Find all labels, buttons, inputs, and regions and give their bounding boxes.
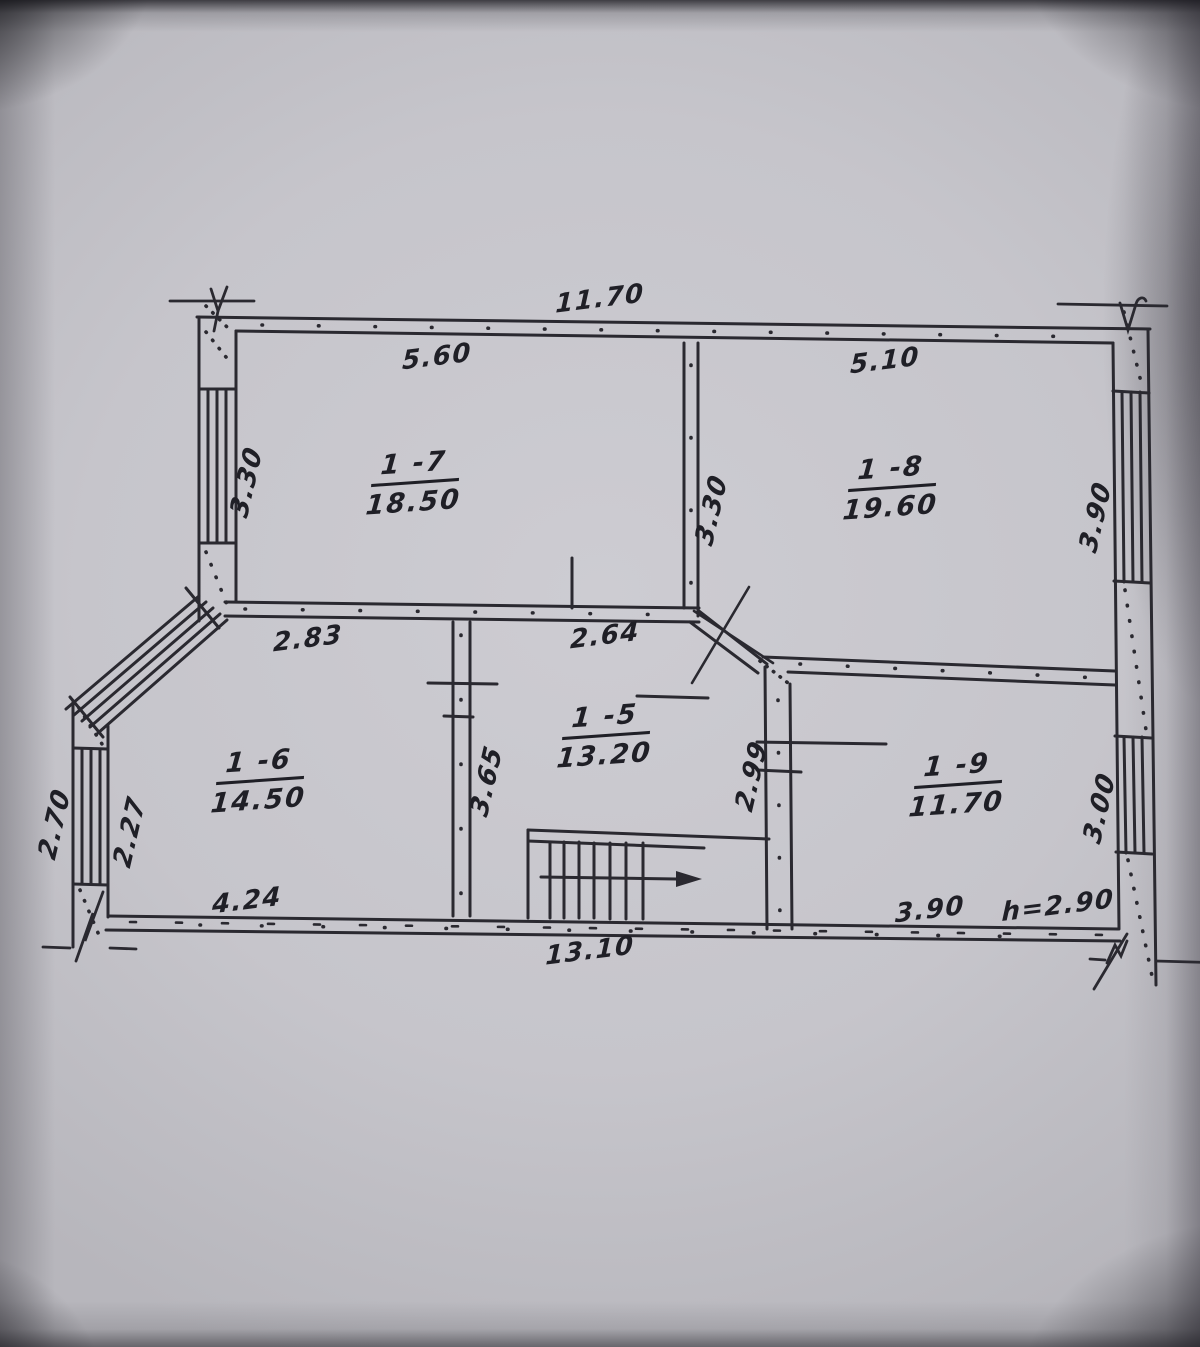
floorplan-drawing xyxy=(0,0,1200,1347)
stairs xyxy=(528,830,769,919)
door-swing-icon xyxy=(692,587,773,683)
room-number-1-5: 1 -5 xyxy=(562,700,653,740)
room-label-1-6: 1 -6 14.50 xyxy=(192,743,328,819)
outer-walls xyxy=(73,317,1156,985)
room-number-1-9: 1 -9 xyxy=(914,749,1005,789)
window-left-1-7 xyxy=(199,389,236,543)
window-right-1-8 xyxy=(1113,391,1150,583)
room-label-1-8: 1 -8 19.60 xyxy=(824,450,960,526)
corner-mark-bottom-left xyxy=(43,892,136,961)
window-left-1-6 xyxy=(73,748,108,885)
room-label-1-7: 1 -7 18.50 xyxy=(347,445,483,521)
floorplan-page: 1 -7 18.50 1 -8 19.60 1 -6 14.50 1 -5 13… xyxy=(0,0,1200,1347)
window-right-1-9 xyxy=(1115,736,1152,854)
bay-window-diagonal-wall xyxy=(66,588,227,737)
corner-mark-top-right xyxy=(1058,298,1167,330)
room-label-1-9: 1 -9 11.70 xyxy=(890,747,1026,823)
interior-walls xyxy=(225,343,1115,929)
corner-mark-top-left xyxy=(170,287,254,331)
room-number-1-6: 1 -6 xyxy=(216,745,307,785)
room-number-1-8: 1 -8 xyxy=(848,452,939,492)
room-label-1-5: 1 -5 13.20 xyxy=(538,698,674,774)
room-number-1-7: 1 -7 xyxy=(371,447,462,487)
